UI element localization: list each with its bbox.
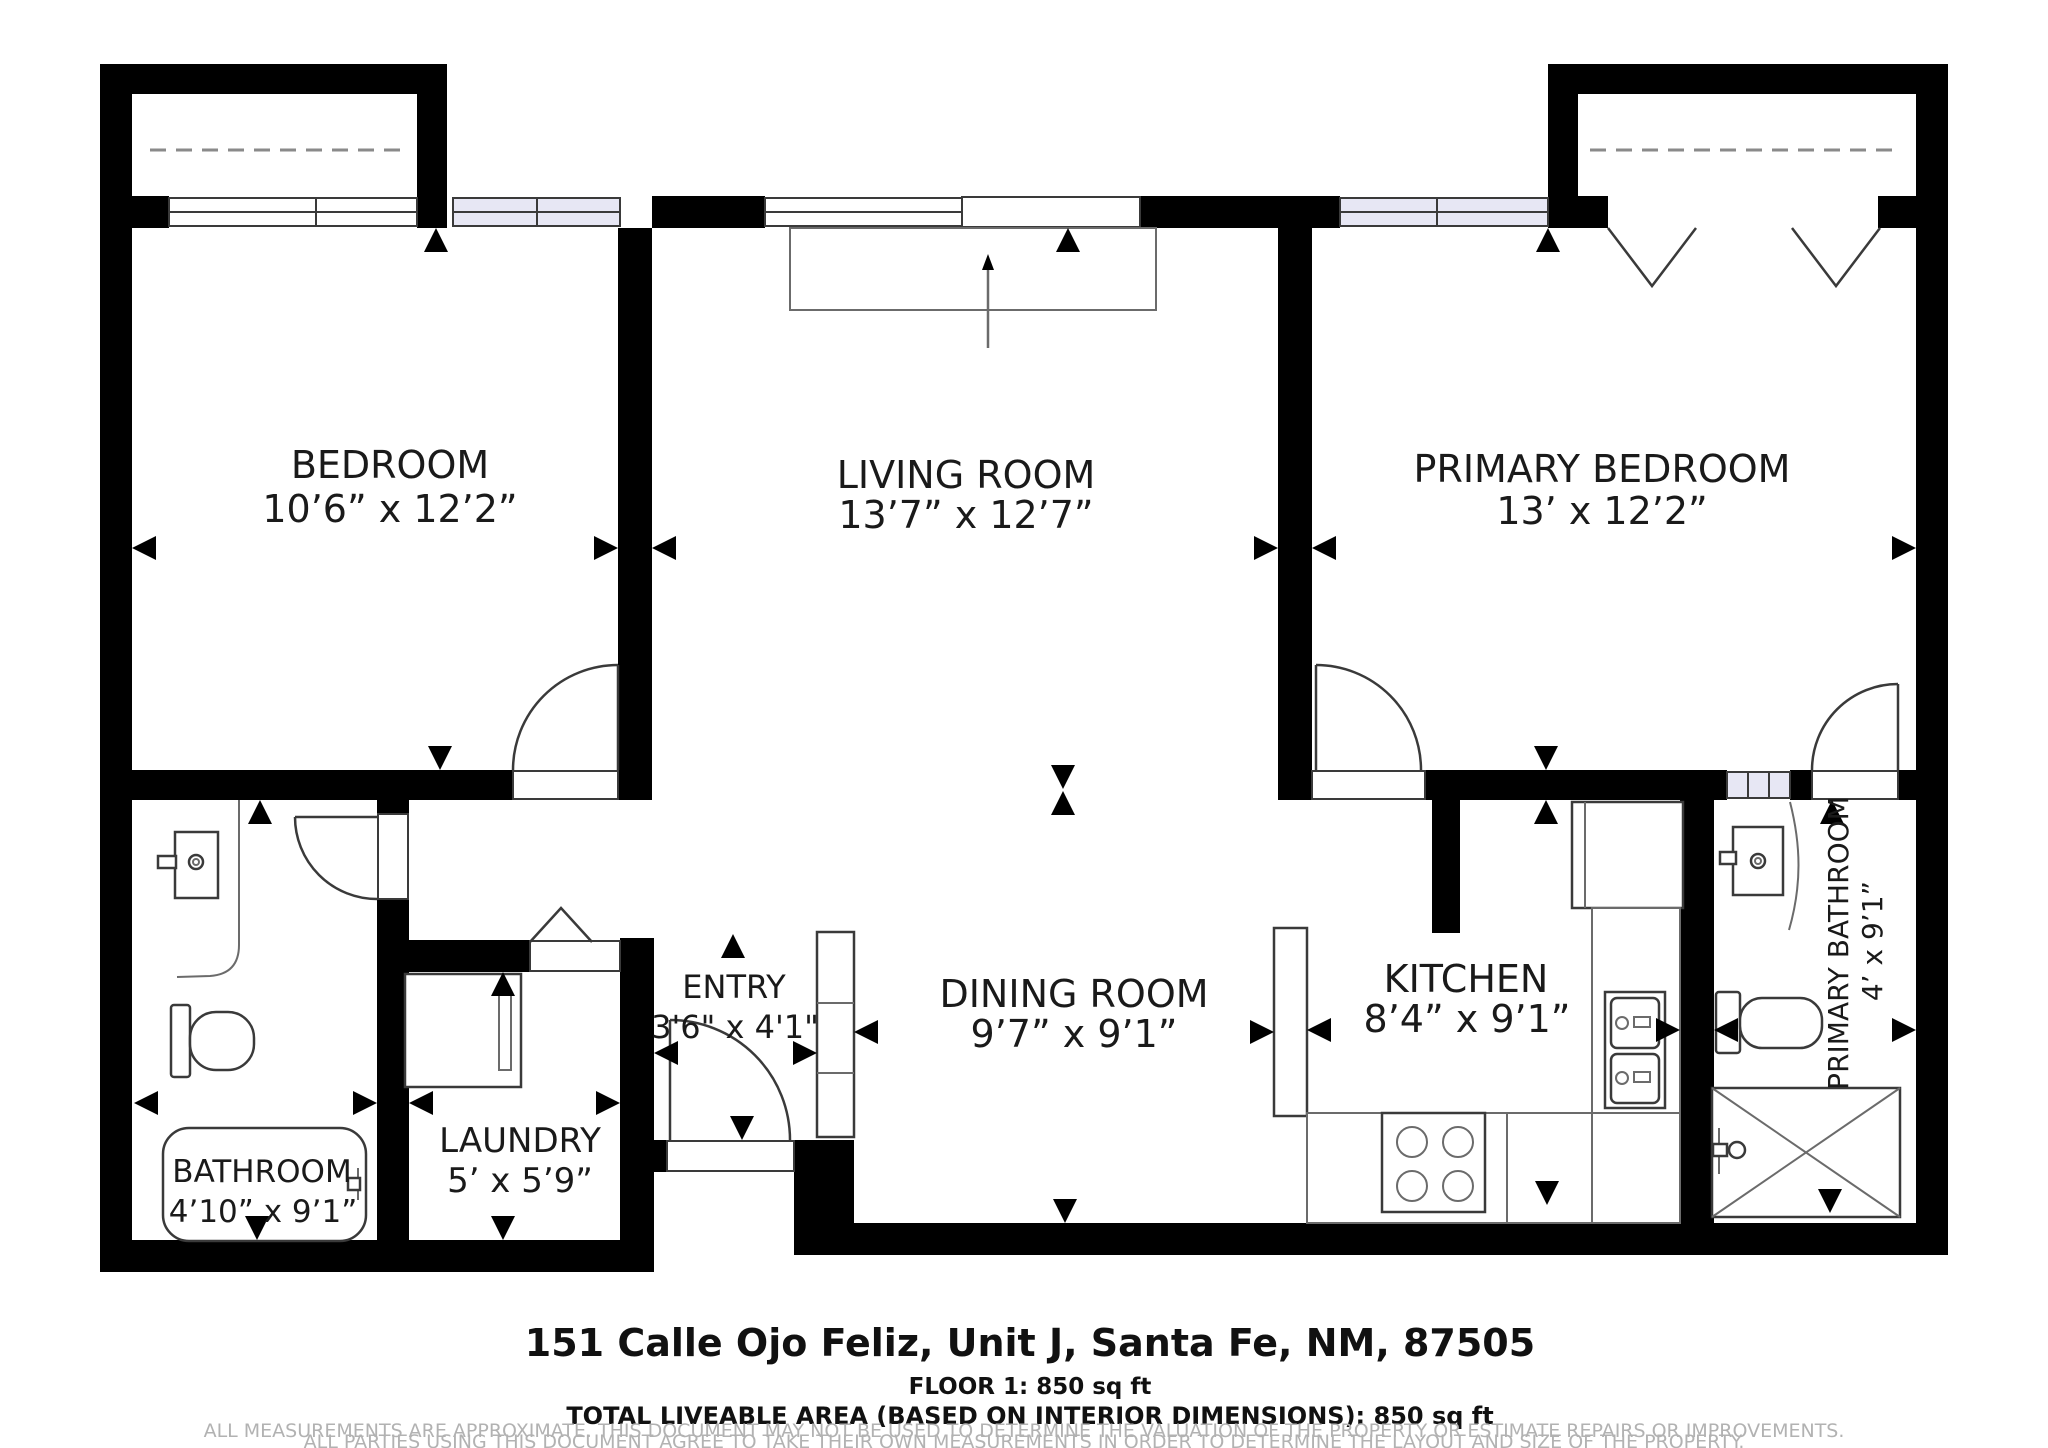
wall-kitchen-stub (1432, 800, 1460, 933)
wall-outer-right (1916, 64, 1948, 1255)
wall-laundry-entry-divider (620, 938, 654, 1272)
arrow-left-icon (1312, 536, 1336, 560)
wall-junction-bedroom-door (618, 770, 652, 800)
primary-bedroom-window (1340, 198, 1548, 226)
arrow-left-icon (134, 1091, 158, 1115)
primary-bathroom-dims: 4’ x 9’1” (1856, 881, 1889, 1001)
arrow-up-icon (424, 228, 448, 252)
wall-bedroom-closet-right (417, 64, 447, 228)
wall-bathroom-right-upper (377, 800, 409, 814)
dining-room-dims: 9’7” x 9’1” (971, 1012, 1178, 1056)
arrow-up-icon (248, 800, 272, 824)
front-door-threshold (667, 1141, 794, 1171)
wall-junction-primary-door (1278, 770, 1312, 800)
primary-bath-door-threshold (1812, 771, 1898, 799)
primary-bathroom-window (1727, 772, 1790, 798)
living-room-dims: 13’7” x 12’7” (838, 493, 1093, 537)
wall-top-stub-primary-right (1878, 196, 1916, 228)
bedroom-window (169, 198, 417, 226)
bathroom-label: BATHROOM (172, 1154, 351, 1190)
floor-plan-canvas: BEDROOM 10’6” x 12’2” LIVING ROOM 13’7” … (0, 0, 2048, 1448)
wall-bedroom-closet-top (100, 64, 447, 94)
wall-stub-pb-window-left (1714, 770, 1727, 800)
arrow-up-icon (1051, 791, 1075, 815)
arrow-right-icon (1254, 536, 1278, 560)
bedroom-label: BEDROOM (291, 443, 489, 487)
bathroom-door-threshold (378, 814, 408, 899)
wall-bottom-left (100, 1240, 620, 1272)
wall-bottom-right (794, 1223, 1948, 1255)
laundry-dims: 5’ x 5’9” (447, 1161, 593, 1201)
wall-bedroom-living-divider (618, 228, 652, 770)
entrance-direction-arrow-icon (982, 254, 994, 270)
floor-plan-page: BEDROOM 10’6” x 12’2” LIVING ROOM 13’7” … (0, 0, 2048, 1448)
arrow-left-icon (132, 536, 156, 560)
arrow-left-icon (1307, 1018, 1331, 1042)
primary-bath-sink (1720, 802, 1799, 930)
primary-bedroom-door (1316, 665, 1421, 770)
wall-top-bedroom-living (652, 196, 765, 228)
arrow-down-icon (1051, 765, 1075, 789)
bathroom-dims: 4’10” x 9’1” (169, 1194, 358, 1230)
wall-stub-pb-door-right (1898, 770, 1916, 800)
laundry-door-threshold (530, 941, 620, 971)
floor-area-line: FLOOR 1: 850 sq ft (909, 1374, 1152, 1400)
disclaimer-line-2: ALL PARTIES USING THIS DOCUMENT AGREE TO… (304, 1431, 1745, 1448)
kitchen-peninsula-counter (1274, 928, 1307, 1116)
bathroom-door (295, 817, 377, 899)
arrow-right-icon (1892, 1018, 1916, 1042)
bathroom-toilet (171, 1005, 254, 1077)
primary-closet-door-left (1608, 228, 1696, 286)
wall-entry-front-left (654, 1140, 667, 1172)
primary-door-threshold (1312, 771, 1425, 799)
wall-laundry-top (409, 940, 530, 972)
arrow-up-icon (1056, 228, 1080, 252)
entry-label: ENTRY (682, 968, 786, 1006)
primary-bedroom-label: PRIMARY BEDROOM (1414, 447, 1791, 491)
arrow-left-icon (652, 536, 676, 560)
bedroom-door (513, 665, 618, 770)
kitchen-label: KITCHEN (1384, 957, 1549, 1001)
dining-room-label: DINING ROOM (939, 972, 1208, 1016)
kitchen-counter-bottom (1307, 1113, 1680, 1223)
entry-closet-shelves (817, 932, 854, 1137)
arrow-down-icon (491, 1216, 515, 1240)
shower (1712, 1088, 1900, 1217)
primary-bathroom-label: PRIMARY BATHROOM (1822, 796, 1855, 1090)
stove (1382, 1113, 1485, 1212)
wall-stub-pb-window-right (1790, 770, 1812, 800)
kitchen-counter-right (1592, 908, 1680, 1116)
footer: 151 Calle Ojo Feliz, Unit J, Santa Fe, N… (204, 1321, 1845, 1448)
primary-bedroom-dims: 13’ x 12’2” (1496, 489, 1707, 533)
bedroom-window-2 (453, 198, 620, 226)
laundry-label: LAUNDRY (439, 1121, 601, 1161)
wall-top-stub-primary-left (1548, 196, 1608, 228)
wall-living-primary-divider (1278, 228, 1312, 770)
fridge (1572, 802, 1683, 908)
main-entrance-niche (790, 228, 1156, 348)
laundry-door-swing (530, 908, 592, 942)
arrow-right-icon (1892, 536, 1916, 560)
arrow-right-icon (596, 1091, 620, 1115)
wall-primary-closet-top (1548, 64, 1948, 94)
living-room-label: LIVING ROOM (837, 453, 1096, 497)
bathroom-sink (158, 800, 239, 977)
wall-top-stub-left (132, 196, 169, 228)
arrow-up-icon (1534, 800, 1558, 824)
arrow-down-icon (1053, 1199, 1077, 1223)
arrow-up-icon (1536, 228, 1560, 252)
arrow-right-icon (1250, 1020, 1274, 1044)
arrow-down-icon (730, 1116, 754, 1140)
address-line: 151 Calle Ojo Feliz, Unit J, Santa Fe, N… (525, 1321, 1535, 1365)
bedroom-door-threshold (513, 771, 618, 799)
wall-top-living (1140, 196, 1340, 228)
arrow-up-icon (721, 934, 745, 958)
wall-outer-left (100, 64, 132, 1272)
arrow-left-icon (854, 1020, 878, 1044)
living-window (765, 198, 962, 226)
primary-closet-door-right (1792, 228, 1880, 286)
entry-dims: 3'6" x 4'1" (651, 1008, 819, 1046)
arrow-down-icon (1534, 746, 1558, 770)
wall-kitchen-primarybath-divider (1680, 770, 1714, 1223)
primary-bathroom-door (1812, 684, 1898, 770)
arrow-right-icon (353, 1091, 377, 1115)
arrow-right-icon (594, 536, 618, 560)
main-entrance-threshold (962, 197, 1140, 227)
bedroom-dims: 10’6” x 12’2” (262, 487, 517, 531)
arrow-left-icon (409, 1091, 433, 1115)
wall-bedroom-bottom (100, 770, 513, 800)
wall-primary-bottom (1425, 770, 1680, 800)
arrow-down-icon (428, 746, 452, 770)
kitchen-dims: 8’4” x 9’1” (1364, 997, 1571, 1041)
